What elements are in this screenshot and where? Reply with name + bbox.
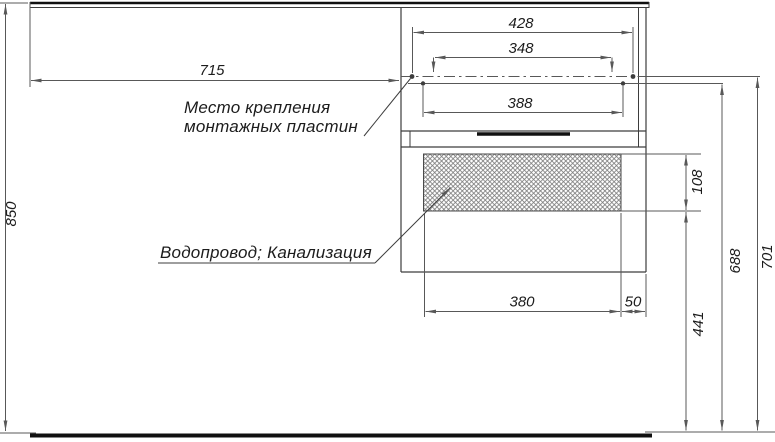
- dimension-value-388: 388: [507, 95, 533, 112]
- dimension-value-701: 701: [759, 244, 775, 269]
- technical-drawing: 428 348 388 715 850 108 441: [0, 0, 775, 442]
- mounting-lines: [401, 74, 760, 86]
- mounting-plates-label-line1: Место крепления: [184, 98, 330, 117]
- leader-line: [364, 79, 411, 137]
- mounting-plates-callout: Место крепления монтажных пластин: [184, 79, 411, 137]
- countertop: [30, 2, 649, 87]
- lower-mounting-point-left: [421, 81, 425, 85]
- plumbing-label: Водопровод; Канализация: [160, 243, 372, 262]
- mounting-point-right: [631, 74, 636, 79]
- mounting-plates-label-line2: монтажных пластин: [184, 117, 358, 136]
- dimension-850: 850: [0, 3, 36, 433]
- plumbing-callout: Водопровод; Канализация: [158, 188, 451, 264]
- leader-line: [375, 188, 451, 264]
- dimension-value-50: 50: [625, 294, 642, 311]
- plumbing-zone: [424, 154, 702, 211]
- dimension-value-850: 850: [3, 201, 20, 227]
- dimension-388: 388: [423, 86, 623, 117]
- dimension-value-380: 380: [509, 294, 535, 311]
- dimension-380-50: 380 50: [425, 213, 647, 317]
- dimension-value-108: 108: [689, 169, 706, 195]
- dimension-715: 715: [31, 62, 399, 81]
- dimension-value-441: 441: [690, 311, 707, 336]
- mounting-point-left: [410, 74, 415, 79]
- dimension-348: 348: [434, 40, 613, 72]
- dimension-701: 701: [758, 78, 775, 431]
- dimension-value-715: 715: [199, 62, 225, 79]
- dimension-value-428: 428: [508, 15, 534, 32]
- floor: [30, 432, 775, 436]
- dimension-value-348: 348: [508, 40, 534, 57]
- plumbing-hatch-area: [424, 154, 622, 211]
- dimension-value-688: 688: [727, 248, 744, 274]
- dimension-441: 441: [686, 212, 707, 431]
- lower-mounting-point-right: [621, 81, 625, 85]
- installation-diagram: 428 348 388 715 850 108 441: [0, 0, 775, 442]
- dimension-688: 688: [722, 85, 744, 431]
- dimension-108: 108: [686, 155, 706, 210]
